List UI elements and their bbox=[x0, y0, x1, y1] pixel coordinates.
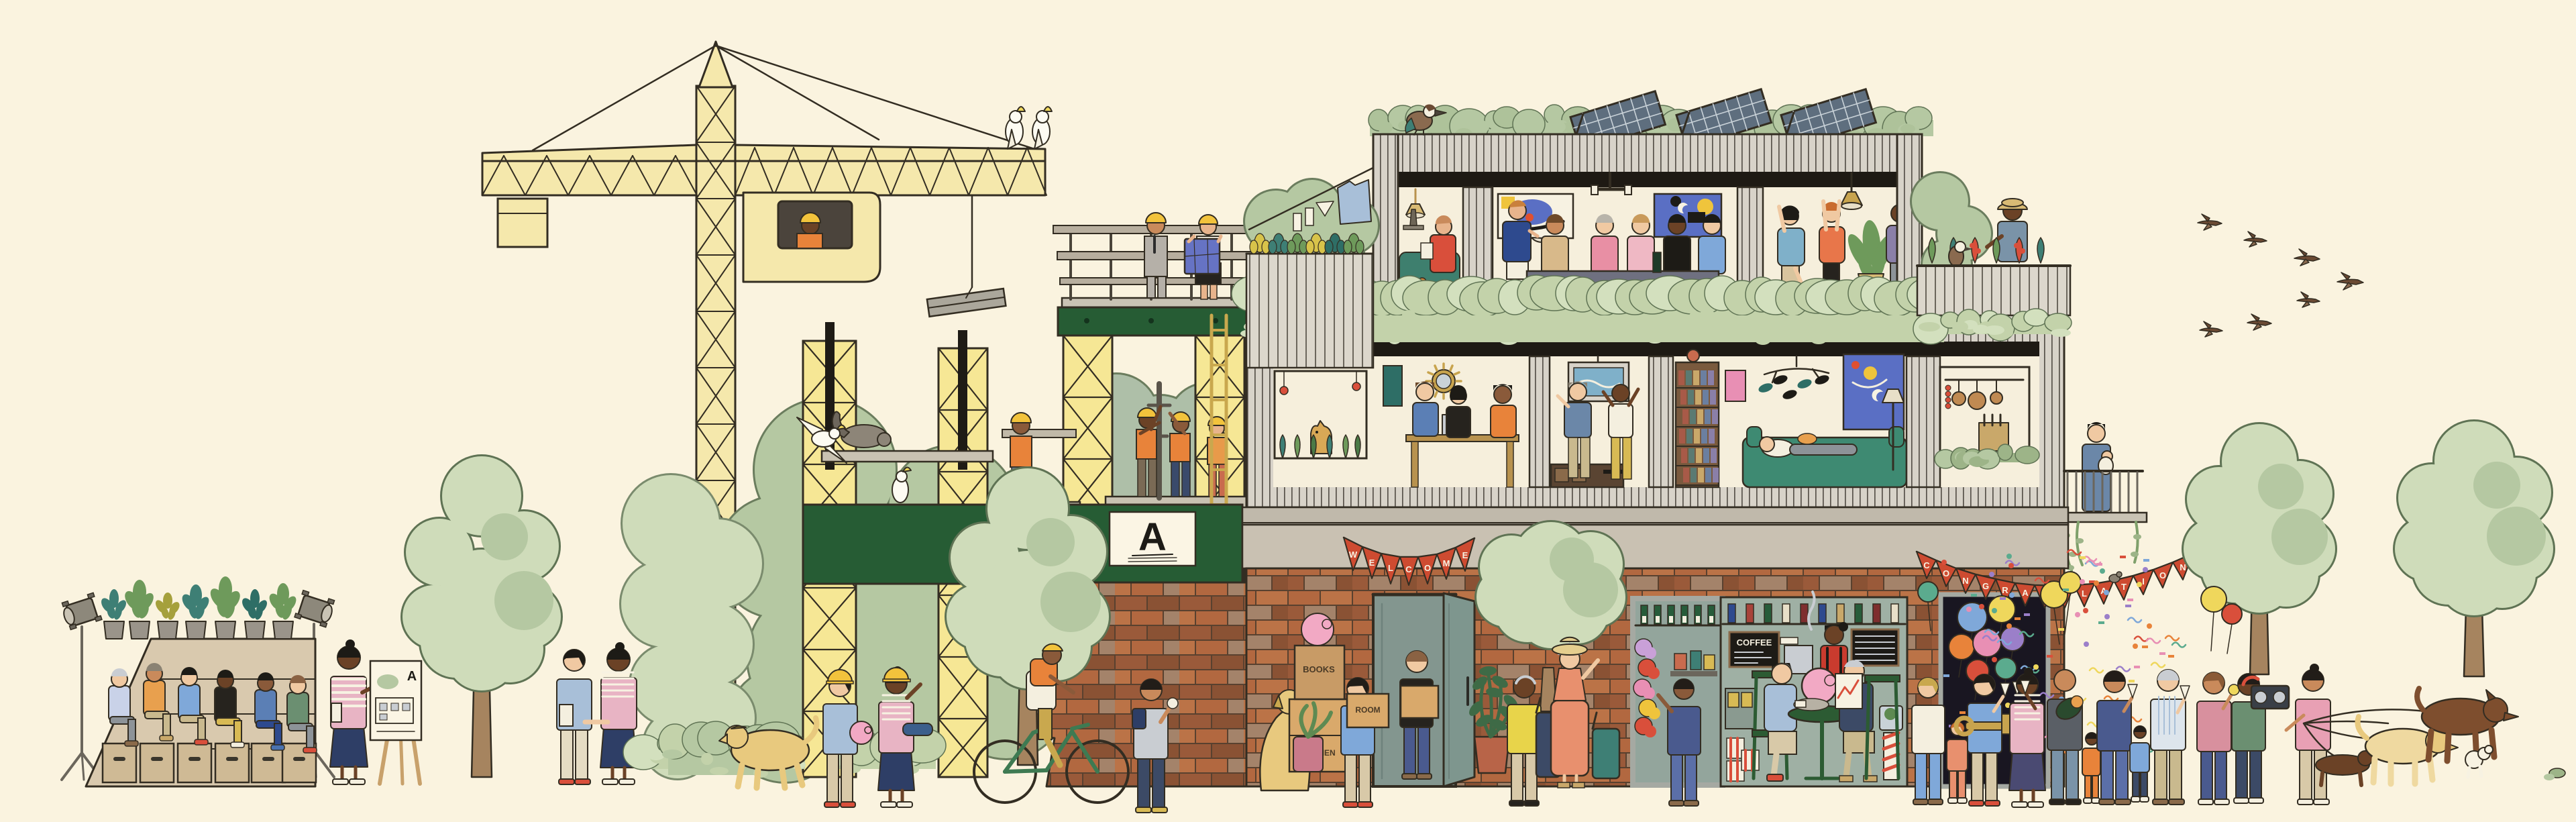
svg-text:C: C bbox=[1405, 564, 1412, 574]
svg-text:O: O bbox=[1943, 568, 1949, 578]
svg-text:COFFEE: COFFEE bbox=[1737, 637, 1772, 648]
svg-text:A: A bbox=[407, 669, 417, 684]
svg-text:M: M bbox=[1443, 558, 1450, 568]
svg-text:W: W bbox=[1349, 550, 1358, 560]
svg-text:C: C bbox=[1923, 560, 1930, 570]
svg-text:T: T bbox=[2121, 582, 2127, 592]
svg-text:G: G bbox=[1982, 581, 1989, 591]
svg-text:A: A bbox=[2022, 588, 2029, 598]
svg-text:L: L bbox=[1388, 563, 1393, 573]
svg-text:E: E bbox=[1462, 550, 1468, 560]
svg-text:N: N bbox=[1962, 576, 1968, 586]
svg-text:E: E bbox=[1369, 558, 1375, 568]
svg-text:I: I bbox=[2142, 576, 2145, 586]
svg-text:L: L bbox=[2082, 588, 2087, 599]
svg-text:N: N bbox=[2180, 562, 2186, 572]
svg-text:A: A bbox=[1138, 515, 1167, 559]
svg-text:ROOM: ROOM bbox=[1355, 705, 1380, 715]
svg-text:BOOKS: BOOKS bbox=[1303, 664, 1335, 674]
svg-text:R: R bbox=[2002, 585, 2008, 595]
svg-text:O: O bbox=[1424, 563, 1431, 573]
svg-text:O: O bbox=[2159, 570, 2166, 580]
